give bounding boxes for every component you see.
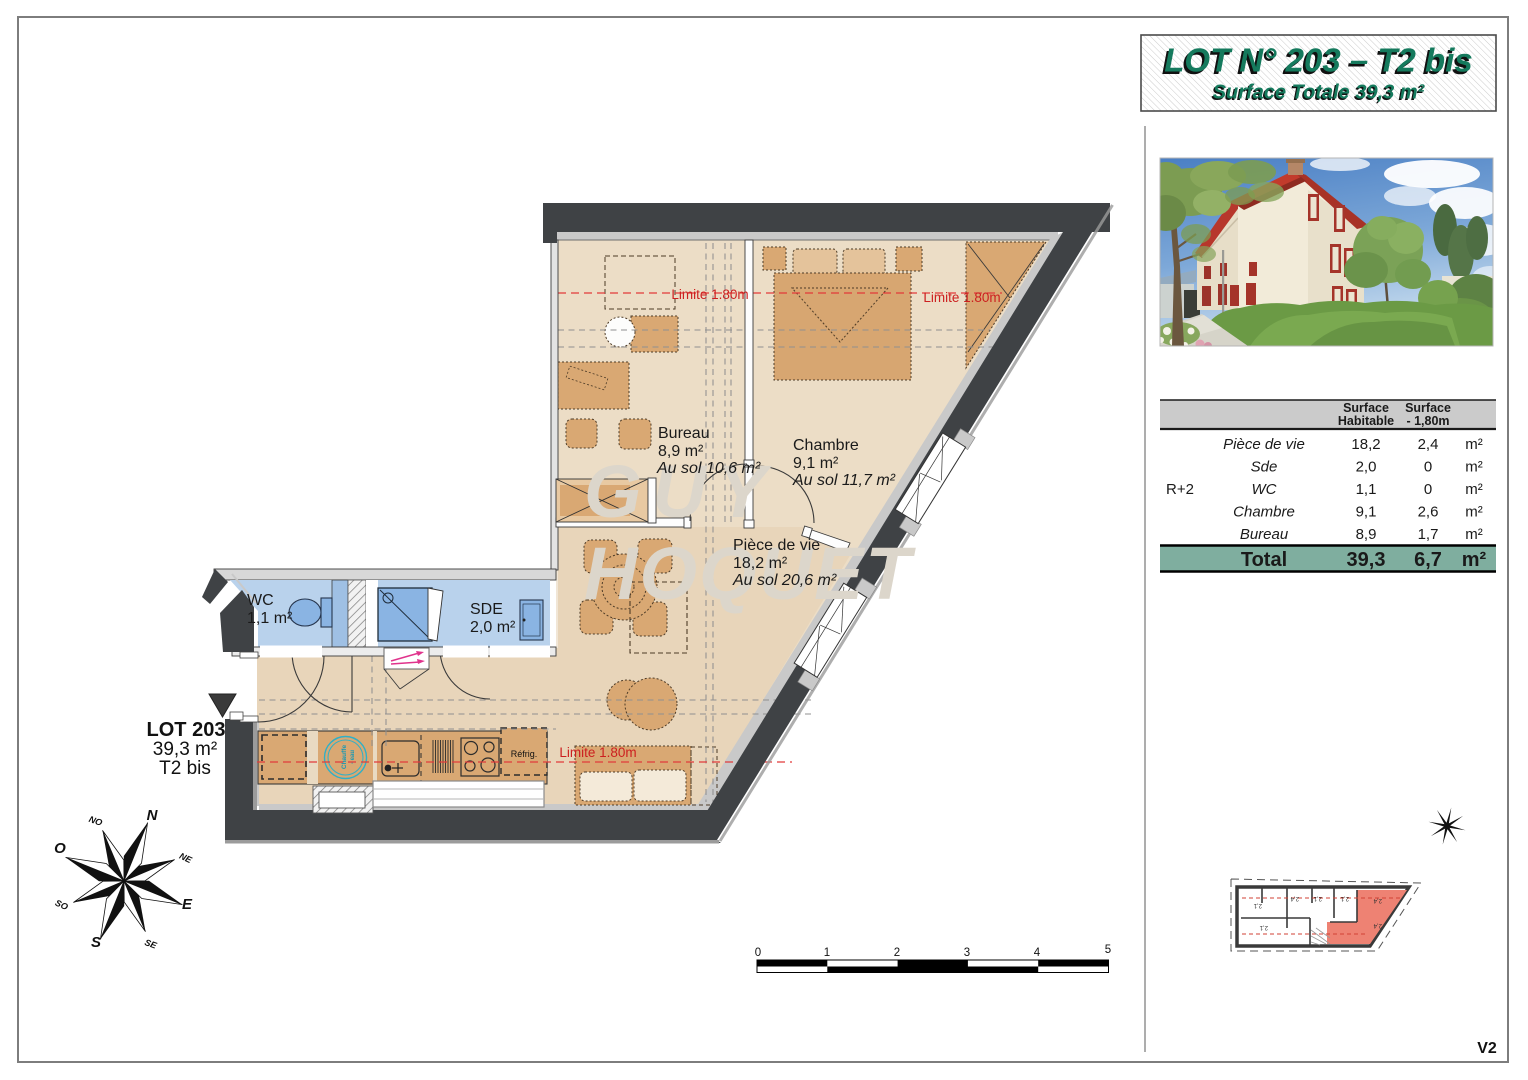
svg-text:NO: NO <box>88 814 104 828</box>
svg-text:2,1: 2,1 <box>1259 924 1268 930</box>
svg-text:Limite 1.80m: Limite 1.80m <box>671 287 748 302</box>
svg-text:2,0 m²: 2,0 m² <box>470 619 516 636</box>
svg-text:2,4: 2,4 <box>1290 895 1299 901</box>
svg-text:4: 4 <box>1034 947 1041 959</box>
svg-text:39,3: 39,3 <box>1347 549 1386 571</box>
svg-text:WC: WC <box>247 592 274 609</box>
svg-text:WC: WC <box>1252 481 1277 498</box>
svg-text:3: 3 <box>964 947 970 959</box>
svg-text:1,1 m²: 1,1 m² <box>247 610 293 627</box>
svg-text:Surface: Surface <box>1343 401 1389 415</box>
svg-text:2,1: 2,1 <box>1313 895 1322 901</box>
svg-text:Sde: Sde <box>1251 459 1278 476</box>
svg-text:0: 0 <box>1424 481 1432 498</box>
svg-text:Limite 1.80m: Limite 1.80m <box>559 745 636 760</box>
svg-text:1,7: 1,7 <box>1418 526 1439 543</box>
svg-text:0: 0 <box>1424 459 1432 476</box>
svg-text:9,1: 9,1 <box>1356 504 1377 521</box>
svg-text:Au sol 20,6 m²: Au sol 20,6 m² <box>732 572 837 589</box>
svg-text:E: E <box>182 896 193 913</box>
svg-text:NE: NE <box>178 851 194 866</box>
svg-text:S: S <box>91 934 101 951</box>
svg-text:T2 bis: T2 bis <box>159 758 211 779</box>
svg-text:2,4: 2,4 <box>1373 922 1382 928</box>
svg-text:m²: m² <box>1465 481 1483 498</box>
svg-text:LOT N° 203 – T2 bis: LOT N° 203 – T2 bis <box>1164 42 1472 79</box>
svg-text:SE: SE <box>143 937 159 951</box>
svg-text:0: 0 <box>755 947 761 959</box>
svg-text:8,9 m²: 8,9 m² <box>658 443 704 460</box>
svg-text:5: 5 <box>1105 944 1111 956</box>
svg-text:39,3 m²: 39,3 m² <box>153 739 217 760</box>
svg-text:Au sol 10,6 m²: Au sol 10,6 m² <box>656 460 761 477</box>
svg-text:18,2: 18,2 <box>1351 436 1380 453</box>
svg-text:Réfrig.: Réfrig. <box>511 749 538 759</box>
svg-text:18,2 m²: 18,2 m² <box>733 555 788 572</box>
svg-text:Chambre: Chambre <box>793 437 859 454</box>
svg-text:2,6: 2,6 <box>1418 504 1439 521</box>
svg-text:LOT 203: LOT 203 <box>147 719 226 741</box>
svg-text:Au sol 11,7 m²: Au sol 11,7 m² <box>792 472 896 489</box>
svg-text:Bureau: Bureau <box>1240 526 1289 543</box>
svg-text:6,7: 6,7 <box>1414 549 1442 571</box>
svg-text:Surface Totale 39,3 m²: Surface Totale 39,3 m² <box>1213 82 1426 104</box>
svg-text:2: 2 <box>894 947 900 959</box>
svg-text:m²: m² <box>1465 436 1483 453</box>
svg-text:Habitable: Habitable <box>1338 414 1394 428</box>
svg-text:2,4: 2,4 <box>1373 897 1382 903</box>
svg-text:N: N <box>147 807 159 824</box>
svg-text:1: 1 <box>824 947 830 959</box>
svg-text:SDE: SDE <box>470 601 503 618</box>
svg-text:m²: m² <box>1462 549 1487 571</box>
svg-text:- 1,80m: - 1,80m <box>1406 414 1449 428</box>
svg-text:8,9: 8,9 <box>1356 526 1377 543</box>
svg-text:SO: SO <box>54 898 70 913</box>
svg-text:Chambre: Chambre <box>1233 504 1295 521</box>
svg-text:m²: m² <box>1465 504 1483 521</box>
svg-text:9,1 m²: 9,1 m² <box>793 455 839 472</box>
svg-text:Total: Total <box>1241 549 1287 571</box>
svg-text:V2: V2 <box>1477 1040 1497 1057</box>
svg-text:2,4: 2,4 <box>1418 436 1439 453</box>
svg-text:2,1: 2,1 <box>1340 895 1349 901</box>
svg-text:Chauffe: Chauffe <box>341 745 348 770</box>
svg-text:O: O <box>54 840 66 857</box>
svg-text:Pièce de vie: Pièce de vie <box>733 537 820 554</box>
svg-text:2,0: 2,0 <box>1356 459 1377 476</box>
svg-text:Bureau: Bureau <box>658 425 710 442</box>
svg-text:Surface: Surface <box>1405 401 1451 415</box>
svg-text:Limite 1.80m: Limite 1.80m <box>923 290 1000 305</box>
svg-text:m²: m² <box>1465 526 1483 543</box>
svg-text:2,1: 2,1 <box>1253 902 1262 908</box>
svg-text:R+2: R+2 <box>1166 481 1194 498</box>
svg-text:Pièce de vie: Pièce de vie <box>1223 436 1305 453</box>
svg-text:m²: m² <box>1465 459 1483 476</box>
svg-text:1,1: 1,1 <box>1356 481 1377 498</box>
